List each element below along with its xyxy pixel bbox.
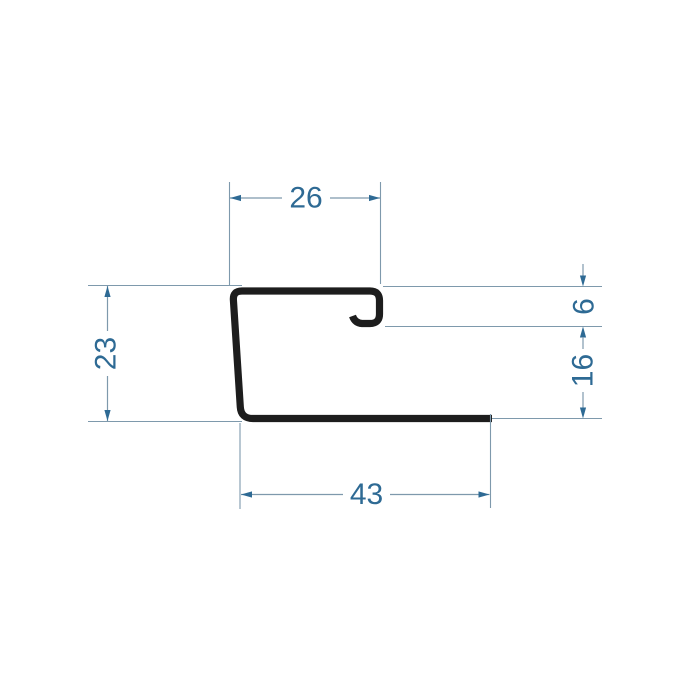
dimension-hook-height: 6 bbox=[383, 264, 602, 338]
arrow-down-icon bbox=[580, 276, 586, 287]
dimension-value-bottom-width: 43 bbox=[350, 478, 383, 511]
dimension-right-lower-height: 16 bbox=[492, 337, 602, 419]
arrow-down-icon bbox=[580, 408, 586, 419]
arrow-down-icon bbox=[104, 410, 110, 421]
arrow-right-icon bbox=[479, 491, 490, 497]
dimension-bottom-width: 43 bbox=[240, 414, 491, 511]
profile-outline bbox=[233, 291, 492, 419]
arrow-up-icon bbox=[104, 286, 110, 297]
dimension-left-height: 23 bbox=[88, 286, 242, 422]
dimension-value-hook-height: 6 bbox=[568, 298, 601, 315]
profile-path bbox=[233, 291, 492, 419]
arrow-up-icon bbox=[580, 327, 586, 338]
dimension-value-right-lower-height: 16 bbox=[567, 354, 600, 387]
dimension-top-width: 26 bbox=[230, 182, 381, 286]
arrow-left-icon bbox=[241, 491, 252, 497]
dimension-value-top-width: 26 bbox=[289, 182, 322, 215]
drawing-canvas: 26 23 6 16 bbox=[0, 0, 700, 700]
profile-technical-drawing: 26 23 6 16 bbox=[0, 0, 700, 700]
arrow-left-icon bbox=[230, 195, 241, 201]
dimension-value-left-height: 23 bbox=[90, 337, 123, 370]
arrow-right-icon bbox=[369, 195, 380, 201]
